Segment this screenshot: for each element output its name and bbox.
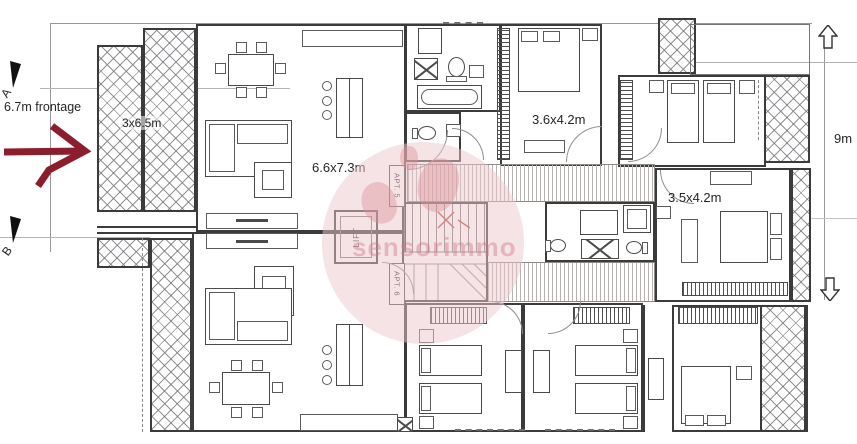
watermark-logo-shape [400,146,418,170]
pillow [770,238,782,260]
dining-table [222,372,270,405]
desk [505,350,522,393]
duct-shaft [414,58,438,80]
pillow [421,386,431,411]
section-marker-a-flag-icon [8,61,24,89]
sofa-seat [237,124,288,144]
nightstand [736,366,752,380]
sofa-chaise [209,124,235,172]
radiator [682,282,788,296]
flow-arrow-up-icon [818,25,838,49]
stool [322,360,332,370]
flow-arrow-down-icon [820,277,840,301]
sink [469,65,484,78]
double-bed [720,211,768,263]
bedroom-top-size-label: 3.6x4.2m [532,112,585,127]
wardrobe [678,307,758,324]
sink [656,206,671,219]
toilet-tank [446,76,467,82]
pillow [626,386,636,411]
window-dashed [443,22,483,24]
duct-shaft [397,417,413,432]
toilet [626,241,642,254]
window-dashed [758,80,759,140]
depth-label: 9m [834,131,852,146]
pillow [685,415,704,426]
pillow [626,348,636,373]
dining-table [228,54,274,86]
balcony-hatch-right-top [764,75,810,163]
duct-shaft [581,239,619,259]
stool [322,81,332,91]
sofa-chaise [209,292,235,340]
bedroom-right-size-label: 3.5x4.2m [668,190,721,205]
bath-cabinet [418,28,442,54]
party-wall-balcony [97,226,196,234]
toilet-tank [545,240,551,252]
chair [256,87,267,98]
coffee-table-inner [262,170,284,190]
shelf [710,171,752,185]
kitchen-counter [302,30,403,47]
balcony-hatch-right-mid [791,168,811,302]
chair [256,42,267,53]
chair [272,382,283,393]
kitchen-island [336,324,363,386]
toilet [550,239,566,252]
watermark-text: sensorimmo [352,232,517,263]
chair [231,407,242,418]
nightstand [739,80,755,94]
terrace-top-right [690,24,810,75]
pillow [521,31,538,42]
chair [236,87,247,98]
chair [231,360,242,371]
stool [322,345,332,355]
toilet-tank [642,242,648,254]
toilet [448,57,465,77]
pillow [671,83,695,94]
tv [236,219,268,222]
tv [236,240,268,243]
wardrobe [573,307,630,324]
bench [524,140,565,153]
stool [322,110,332,120]
pillow [770,213,782,235]
window-dashed [545,429,615,431]
stool [322,96,332,106]
kitchen-island [336,78,363,138]
desk [533,350,550,393]
nightstand [649,80,664,93]
shower-tray [627,209,647,229]
nightstand [623,416,638,429]
vanity [580,210,618,235]
nightstand [582,28,598,41]
wardrobe [681,219,698,263]
dimension-line-right [824,28,825,300]
chair [252,360,263,371]
stool [322,375,332,385]
chair [252,407,263,418]
balcony-size-label: 3x6.5m [120,116,163,130]
pillow [707,83,731,94]
bathtub-inner [421,89,478,105]
window-dashed [455,429,525,431]
chair [275,63,286,74]
pillow [543,31,560,42]
section-marker-b-flag-icon [8,216,24,244]
highlight-arrow-icon [0,112,100,194]
pillow [421,348,431,373]
wall-nook [643,305,645,432]
nightstand [419,416,434,429]
balcony-dashed-edge [142,238,143,432]
wardrobe [497,28,510,160]
chair [236,42,247,53]
nightstand [623,329,638,343]
floor-plan: LIFT APT. 5 APT. 6 [0,0,857,444]
chair [215,63,226,74]
section-marker-b-label: B [0,244,15,259]
chair [209,382,220,393]
desk [648,358,664,400]
balcony-hatch-bottom-left-b [150,238,192,432]
pillow [707,415,726,426]
kitchen-counter [300,414,398,431]
sofa-seat [237,321,288,341]
